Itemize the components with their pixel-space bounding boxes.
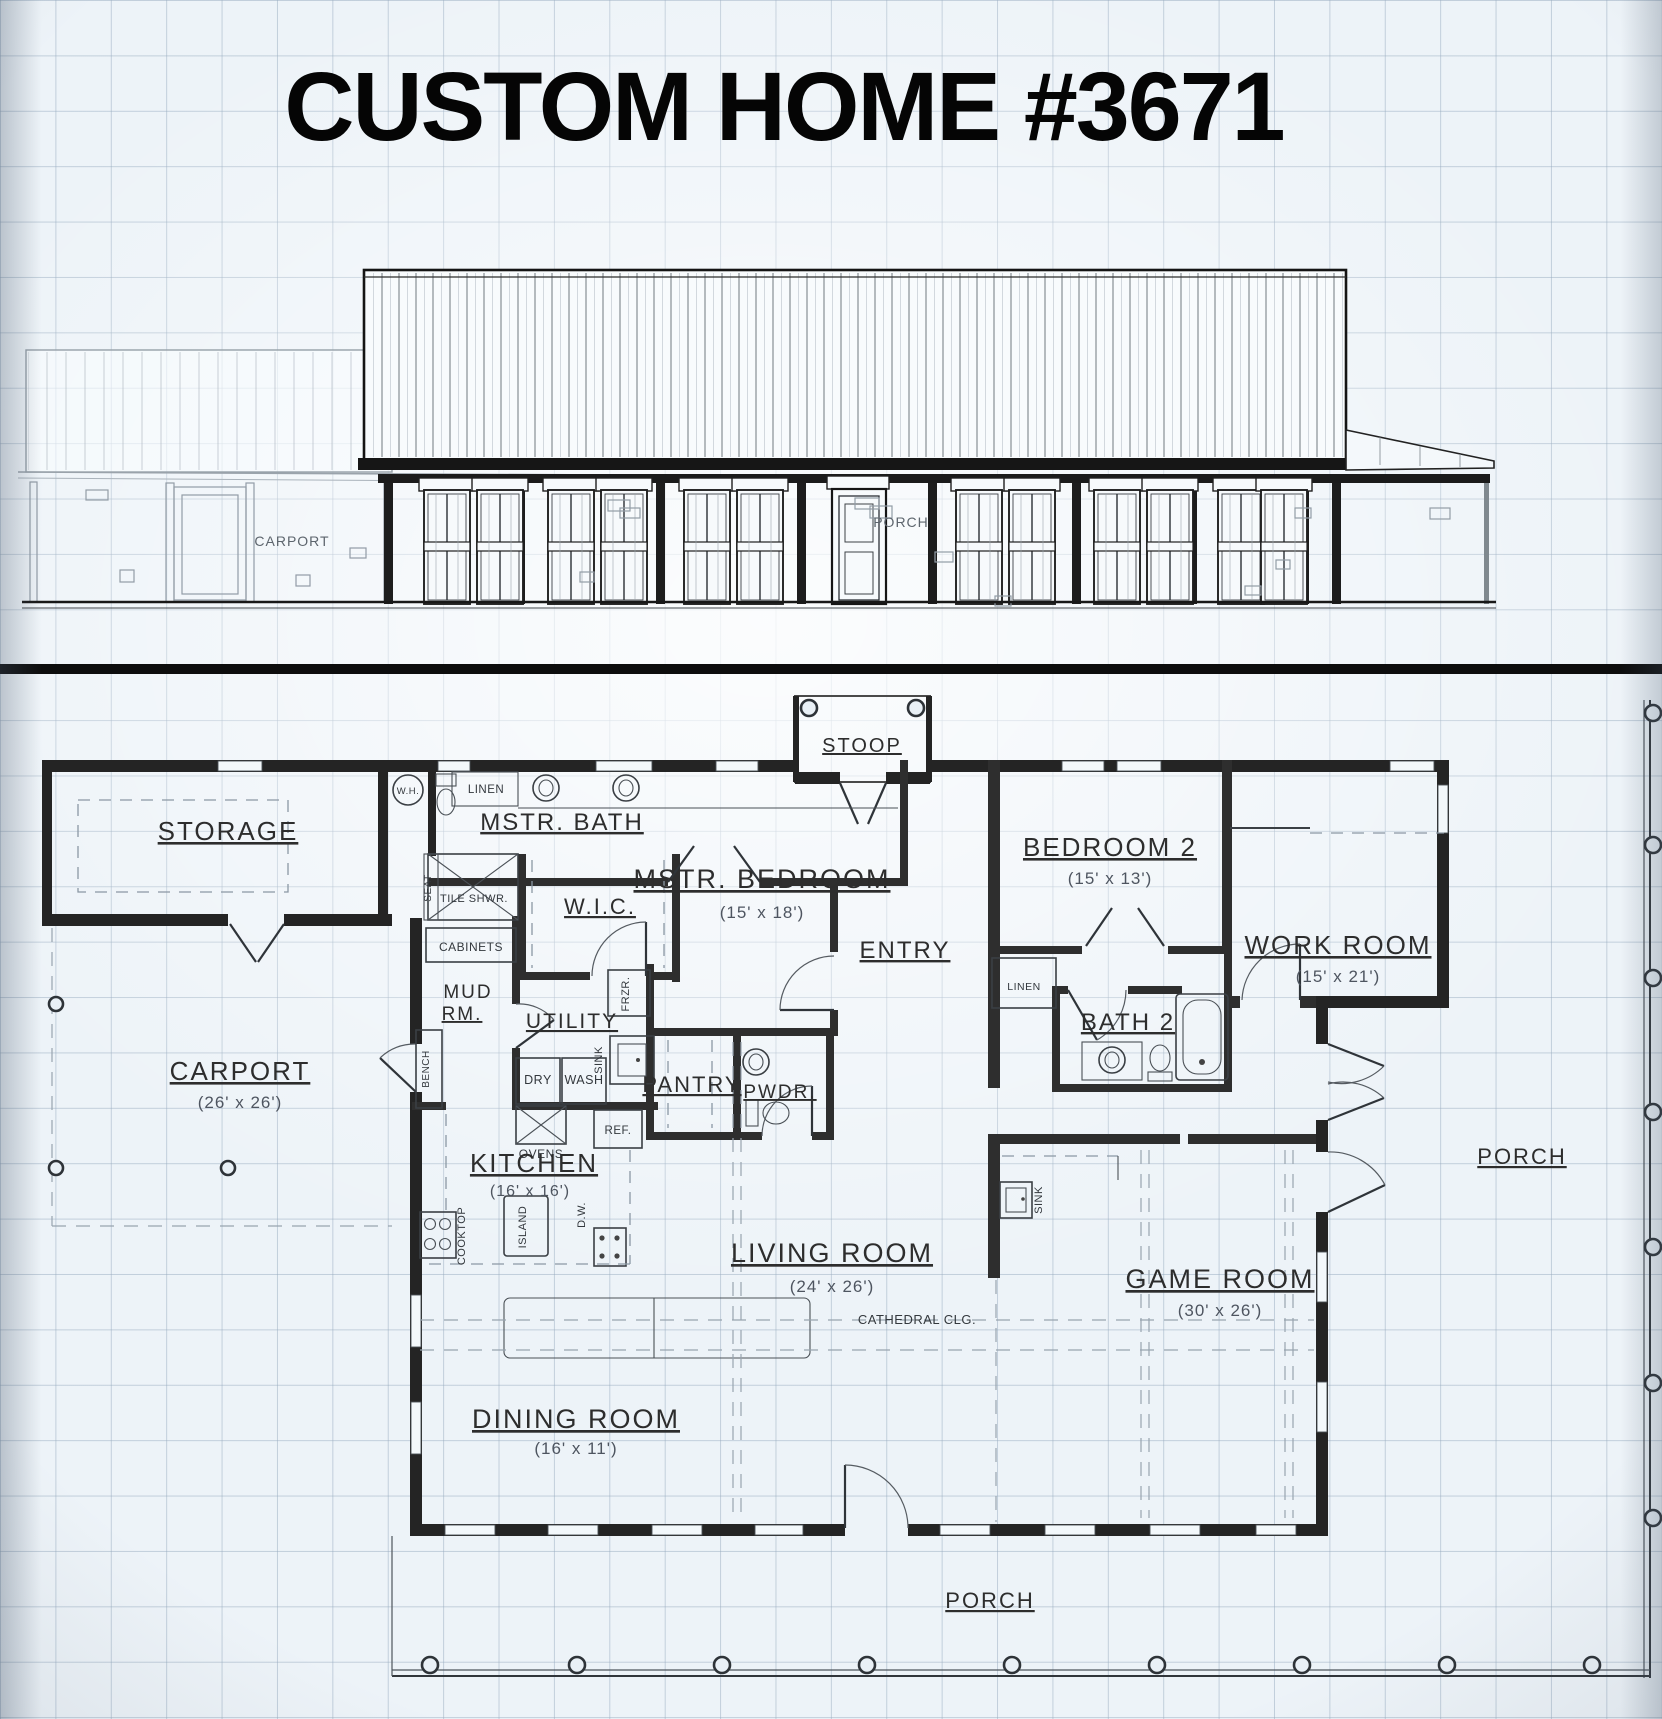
label-porch-bottom: PORCH xyxy=(945,1588,1034,1613)
bar-sink-box xyxy=(1000,1182,1032,1218)
label-wic: W.I.C. xyxy=(564,894,636,919)
label-entry: ENTRY xyxy=(860,937,951,964)
dims-living-room: (24' x 26') xyxy=(790,1277,875,1296)
elevation-front-door xyxy=(827,476,889,604)
label-sink-utility: SINK xyxy=(593,1046,605,1074)
toilet-tank-icon xyxy=(436,774,456,786)
label-ref: REF. xyxy=(605,1125,632,1137)
label-cooktop: COOKTOP xyxy=(456,1207,468,1265)
label-porch-right: PORCH xyxy=(1477,1144,1566,1169)
sink-icon xyxy=(1099,1047,1125,1073)
floor-plan: STOOP STORAGE CARPORT (26' x 26') W.H. L… xyxy=(42,696,1661,1678)
porch-structure xyxy=(49,700,1661,1678)
label-storage: STORAGE xyxy=(158,816,299,846)
dims-dining-room: (16' x 11') xyxy=(534,1439,617,1458)
dims-kitchen: (16' x 16') xyxy=(490,1183,570,1200)
doors xyxy=(230,783,1385,1528)
label-bedroom2: BEDROOM 2 xyxy=(1023,832,1197,862)
sink-icon xyxy=(613,775,639,801)
blueprint-page: CUSTOM HOME #3671 CARPORT xyxy=(0,0,1662,1719)
range-box xyxy=(594,1228,626,1266)
dims-carport: (26' x 26') xyxy=(198,1093,283,1112)
label-wh: W.H. xyxy=(397,786,420,797)
label-pantry: PANTRY xyxy=(642,1072,741,1097)
elevation-drawing: CARPORT xyxy=(18,270,1496,608)
elevation-main-roof xyxy=(358,270,1494,470)
label-kitchen: KITCHEN xyxy=(470,1148,598,1178)
label-mstr-bedroom: MSTR. BEDROOM xyxy=(633,864,890,894)
label-dining-room: DINING ROOM xyxy=(472,1404,680,1434)
elevation-porch-label: PORCH xyxy=(873,514,929,530)
label-work-room: WORK ROOM xyxy=(1245,930,1432,960)
dims-bedroom2: (15' x 13') xyxy=(1068,869,1153,888)
label-living-room: LIVING ROOM xyxy=(731,1238,933,1268)
label-island: ISLAND xyxy=(517,1206,529,1249)
toilet-icon xyxy=(1150,1045,1170,1071)
elevation-carport-label: CARPORT xyxy=(254,533,329,549)
label-game-room: GAME ROOM xyxy=(1125,1264,1314,1294)
label-mstr-bath: MSTR. BATH xyxy=(480,809,644,836)
label-seat: SEAT xyxy=(423,874,434,901)
label-bench: BENCH xyxy=(421,1050,432,1088)
label-dry: DRY xyxy=(524,1073,552,1087)
bathtub-icon xyxy=(1176,994,1228,1080)
label-cathedral-clg: CATHEDRAL CLG. xyxy=(858,1312,976,1327)
cooktop-box xyxy=(420,1212,456,1258)
elevation-porch-band: PORCH xyxy=(378,474,1490,606)
label-stoop: STOOP xyxy=(822,735,902,757)
label-tile-shwr: TILE SHWR. xyxy=(440,893,508,905)
label-linen-hall: LINEN xyxy=(1007,981,1040,993)
label-pwdr: PWDR. xyxy=(743,1082,816,1103)
label-linen-bath: LINEN xyxy=(468,784,504,796)
label-frzr: FRZR. xyxy=(620,977,632,1012)
label-utility: UTILITY xyxy=(526,1010,618,1033)
blueprint-drawing: CUSTOM HOME #3671 CARPORT xyxy=(0,0,1662,1719)
section-divider xyxy=(0,664,1662,674)
label-mud-rm-2: RM. xyxy=(442,1004,483,1025)
label-mud-rm-1: MUD xyxy=(443,982,492,1003)
sink-icon xyxy=(743,1049,769,1075)
toilet-tank-icon xyxy=(746,1100,758,1126)
label-dw: D.W. xyxy=(576,1202,588,1228)
dims-work-room: (15' x 21') xyxy=(1296,967,1381,986)
page-title: CUSTOM HOME #3671 xyxy=(284,52,1283,161)
sink-icon xyxy=(533,775,559,801)
label-wash: WASH xyxy=(564,1073,603,1087)
dims-mstr-bedroom: (15' x 18') xyxy=(720,903,805,922)
label-carport: CARPORT xyxy=(170,1056,311,1086)
label-bath2: BATH 2 xyxy=(1081,1009,1175,1036)
dims-game-room: (30' x 26') xyxy=(1178,1301,1263,1320)
label-cabinets: CABINETS xyxy=(439,940,503,954)
dining-counter xyxy=(504,1298,810,1358)
room-labels: STOOP STORAGE CARPORT (26' x 26') W.H. L… xyxy=(158,735,1567,1613)
label-sink-bar: SINK xyxy=(1033,1186,1045,1214)
